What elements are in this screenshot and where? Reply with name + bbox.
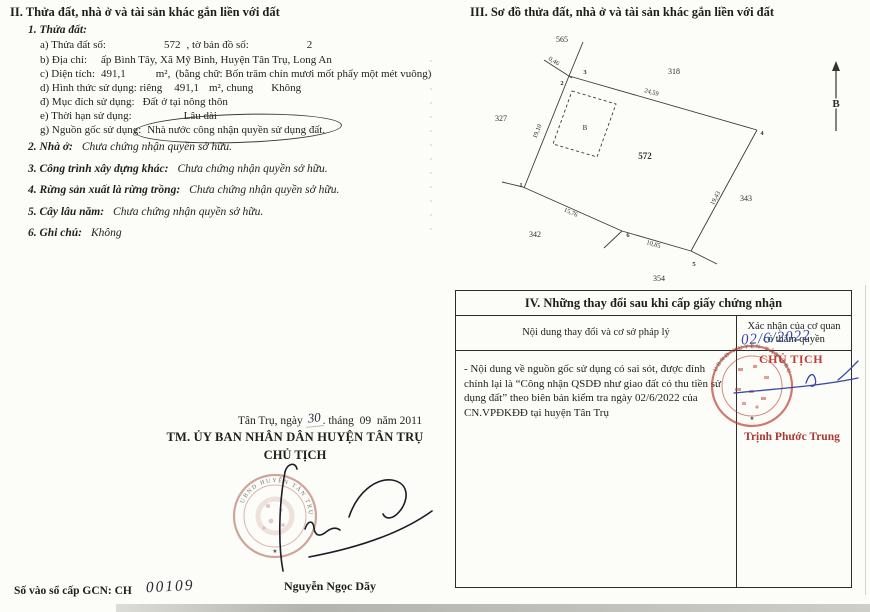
registry-book-line: Số vào sổ cấp GCN: CH00109 bbox=[14, 581, 195, 599]
field-use-purpose: đ) Mục đích sử dụng:Đất ở tại nông thôn bbox=[40, 96, 228, 108]
item-construction: 3. Công trình xây dựng khác:Chưa chứng n… bbox=[28, 163, 328, 175]
area-label: c) Diện tích: bbox=[40, 68, 95, 80]
use-form-unit: m², chung bbox=[209, 82, 253, 94]
building-mark: B bbox=[583, 124, 588, 132]
correction-note: - Nội dung về nguồn gốc sử dụng có sai s… bbox=[456, 351, 736, 420]
col-header-content: Nội dung thay đổi và cơ sở pháp lý bbox=[456, 316, 736, 350]
house-value: Chưa chứng nhận quyền sở hữu. bbox=[82, 141, 232, 153]
change-content-cell: - Nội dung về nguồn gốc sử dụng có sai s… bbox=[456, 351, 736, 587]
field-address: b) Địa chỉ:ấp Bình Tây, Xã Mỹ Bình, Huyệ… bbox=[40, 54, 332, 66]
issue-date-line: Tân Trụ, ngày 30. tháng 09 năm 2011 bbox=[150, 412, 510, 429]
scan-edge-line bbox=[865, 285, 866, 595]
seal-star: ★ bbox=[272, 548, 277, 555]
parcel-number-value: 572 bbox=[164, 39, 181, 51]
official-seal-icon: UBND HUYỆN TÂN TRỤ ★ bbox=[234, 475, 316, 557]
issue-place-prefix: Tân Trụ, ngày bbox=[238, 415, 303, 427]
seal-text: UBND HUYỆN TÂN TRỤ bbox=[240, 476, 313, 516]
parcel-number-mark: 572 bbox=[638, 151, 652, 161]
neighbor-parcel-342: 342 bbox=[529, 230, 541, 239]
item-notes: 6. Ghi chú:Không bbox=[28, 227, 122, 239]
address-value: ấp Bình Tây, Xã Mỹ Bình, Huyện Tân Trụ, … bbox=[101, 54, 332, 66]
confirmation-cell bbox=[736, 351, 851, 587]
neighbor-parcel-343: 343 bbox=[740, 194, 752, 203]
item-forest: 4. Rừng sản xuất là rừng trồng:Chưa chứn… bbox=[28, 184, 339, 196]
vertex-2: 2 bbox=[560, 80, 563, 87]
neighbor-parcel-565: 565 bbox=[556, 35, 568, 44]
perennial-label: 5. Cây lâu năm: bbox=[28, 206, 104, 218]
approver-title: CHỦ TỊCH bbox=[745, 352, 837, 367]
use-form-private-value: 491,1 bbox=[174, 82, 199, 94]
use-term-label: e) Thời hạn sử dụng: bbox=[40, 110, 132, 122]
neighbor-parcel-327: 327 bbox=[495, 114, 507, 123]
area-value: 491,1 bbox=[101, 68, 126, 80]
use-form-label: d) Hình thức sử dụng: riêng bbox=[40, 82, 162, 94]
edge-length-1576: 15,76 bbox=[563, 206, 580, 219]
north-arrow-icon: B bbox=[832, 61, 840, 131]
north-letter: B bbox=[832, 98, 840, 110]
section4-title: IV. Những thay đổi sau khi cấp giấy chứn… bbox=[456, 291, 851, 316]
use-origin-label: g) Nguồn gốc sử dụng: bbox=[40, 124, 141, 136]
chairman-signature bbox=[280, 464, 432, 571]
use-purpose-value: Đất ở tại nông thôn bbox=[143, 96, 228, 108]
edge-length-046: 0,46 bbox=[547, 55, 561, 67]
notes-label: 6. Ghi chú: bbox=[28, 227, 82, 239]
vertex-3: 3 bbox=[583, 69, 587, 76]
signer-name: Nguyễn Ngọc Dãy bbox=[185, 579, 475, 594]
field-use-form: d) Hình thức sử dụng: riêng491,1m², chun… bbox=[40, 82, 301, 94]
registry-book-number: 00109 bbox=[145, 577, 195, 598]
area-in-words: (bằng chữ: Bốn trăm chín mươi mốt phẩy m… bbox=[175, 68, 431, 80]
forest-label: 4. Rừng sản xuất là rừng trồng: bbox=[28, 184, 180, 196]
parcel-diagram: 565 318 327 342 343 354 572 B 0,46 24,59… bbox=[470, 28, 870, 290]
field-parcel-number: a) Thửa đất số:572, tờ bản đồ số:2 bbox=[40, 39, 312, 51]
address-label: b) Địa chỉ: bbox=[40, 54, 87, 66]
edge-length-2459: 24,59 bbox=[643, 87, 659, 98]
col1-header-text: Nội dung thay đổi và cơ sở pháp lý bbox=[522, 326, 670, 339]
vertex-4: 4 bbox=[760, 130, 764, 137]
neighbor-parcel-354: 354 bbox=[653, 274, 665, 283]
item-house: 2. Nhà ở:Chưa chứng nhận quyền sở hữu. bbox=[28, 141, 232, 153]
edge-length-1085: 10,85 bbox=[645, 239, 661, 250]
area-unit: m², bbox=[156, 68, 171, 80]
house-label: 2. Nhà ở: bbox=[28, 141, 73, 153]
construction-label: 3. Công trình xây dựng khác: bbox=[28, 163, 168, 175]
use-purpose-label: đ) Mục đích sử dụng: bbox=[40, 96, 135, 108]
use-form-shared-value: Không bbox=[271, 82, 301, 94]
map-sheet-value: 2 bbox=[307, 39, 313, 51]
issue-date-rest: . tháng 09 năm 2011 bbox=[323, 415, 423, 427]
map-sheet-label: , tờ bản đồ số: bbox=[186, 39, 248, 51]
edge-length-1910: 19,10 bbox=[532, 123, 544, 139]
neighbor-parcel-318: 318 bbox=[668, 67, 680, 76]
registry-book-label: Số vào sổ cấp GCN: CH bbox=[14, 585, 132, 597]
forest-value: Chưa chứng nhận quyền sở hữu. bbox=[189, 184, 339, 196]
section3-title: III. Sơ đồ thửa đất, nhà ở và tài sản kh… bbox=[470, 5, 774, 20]
scan-artifact-marks bbox=[430, 60, 432, 235]
svg-text:UBND HUYỆN TÂN TRỤ: UBND HUYỆN TÂN TRỤ bbox=[240, 476, 313, 516]
table-body-row: - Nội dung về nguồn gốc sử dụng có sai s… bbox=[456, 351, 851, 587]
parcel-number-label: a) Thửa đất số: bbox=[40, 39, 106, 51]
vertex-1: 1 bbox=[519, 182, 522, 189]
notes-value: Không bbox=[91, 227, 122, 239]
scan-shadow-band bbox=[116, 604, 870, 612]
chairman-title: CHỦ TỊCH bbox=[110, 448, 480, 463]
field-area: c) Diện tích:491,1m²,(bằng chữ: Bốn trăm… bbox=[40, 68, 431, 80]
handwritten-day: 30 bbox=[305, 409, 324, 428]
section2-title: II. Thửa đất, nhà ở và tài sản khác gắn … bbox=[10, 5, 280, 20]
perennial-value: Chưa chứng nhận quyền sở hữu. bbox=[113, 206, 263, 218]
approver-name: Trịnh Phước Trung bbox=[733, 431, 851, 443]
construction-value: Chưa chứng nhận quyền sở hữu. bbox=[177, 163, 327, 175]
vertex-5: 5 bbox=[692, 261, 696, 268]
land-certificate-page: II. Thửa đất, nhà ở và tài sản khác gắn … bbox=[0, 0, 870, 612]
section2-subtitle: 1. Thửa đất: bbox=[28, 24, 87, 36]
committee-name: TM. ỦY BAN NHÂN DÂN HUYỆN TÂN TRỤ bbox=[110, 430, 480, 445]
item-perennial: 5. Cây lâu năm:Chưa chứng nhận quyền sở … bbox=[28, 206, 263, 218]
